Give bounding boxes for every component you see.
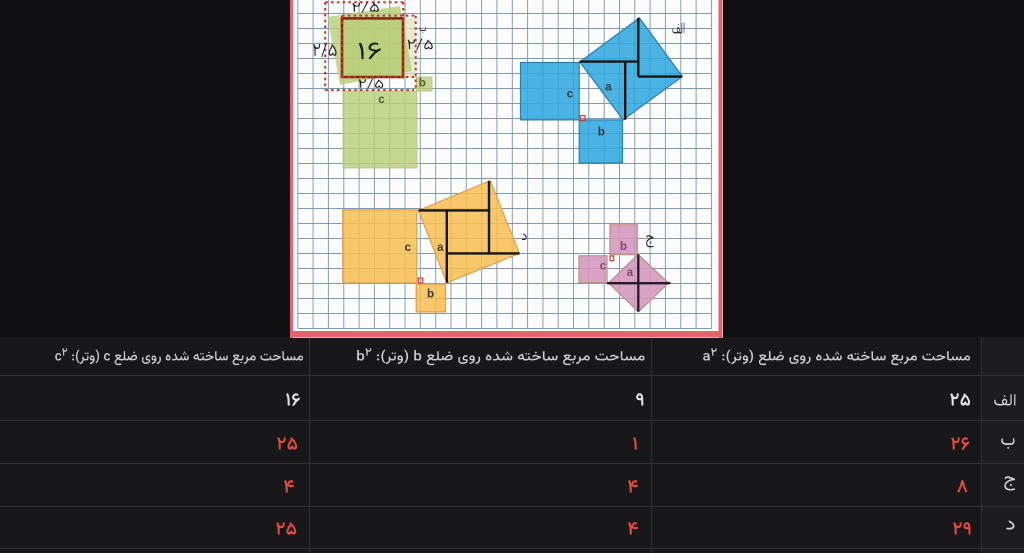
svg-text:c: c <box>567 88 574 100</box>
svg-text:a: a <box>627 267 634 279</box>
svg-text:a: a <box>605 81 612 93</box>
svg-text:c: c <box>405 242 412 254</box>
svg-text:b: b <box>419 78 426 90</box>
svg-text:a: a <box>437 242 444 254</box>
svg-text:c: c <box>600 261 607 273</box>
svg-text:b: b <box>598 127 605 139</box>
svg-text:c: c <box>378 94 385 106</box>
svg-text:b: b <box>427 289 434 301</box>
svg-text:b: b <box>620 241 627 253</box>
